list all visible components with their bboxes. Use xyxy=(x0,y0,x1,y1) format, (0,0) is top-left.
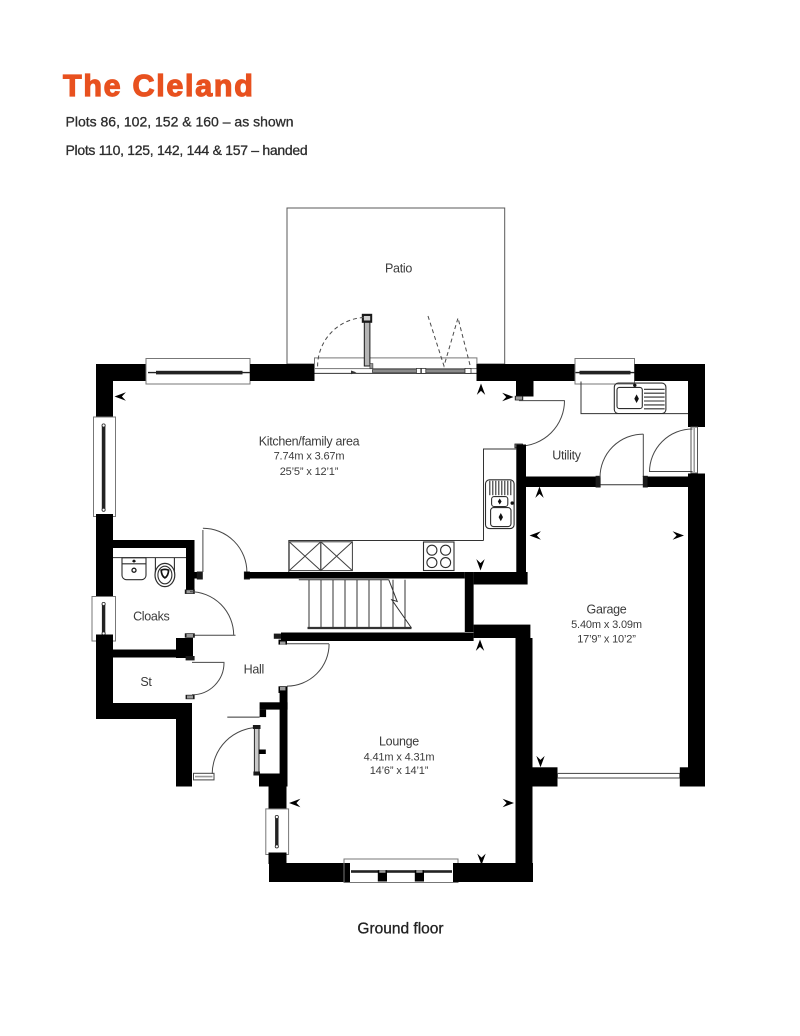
svg-text:Garage: Garage xyxy=(587,603,627,617)
svg-text:Utility: Utility xyxy=(552,449,582,463)
svg-text:Lounge: Lounge xyxy=(379,735,419,749)
svg-text:The Cleland: The Cleland xyxy=(63,69,255,103)
svg-text:5.40m x 3.09m: 5.40m x 3.09m xyxy=(571,619,642,631)
svg-text:25’5” x 12’1”: 25’5” x 12’1” xyxy=(280,466,339,478)
svg-text:Cloaks: Cloaks xyxy=(133,609,169,623)
svg-text:Hall: Hall xyxy=(244,663,264,677)
svg-text:14’6” x 14’1”: 14’6” x 14’1” xyxy=(370,765,429,777)
svg-text:Plots 86, 102, 152 & 160 – as: Plots 86, 102, 152 & 160 – as shown xyxy=(66,113,294,129)
svg-text:4.41m x 4.31m: 4.41m x 4.31m xyxy=(364,752,435,764)
svg-text:Plots 110, 125, 142, 144 & 157: Plots 110, 125, 142, 144 & 157 – handed xyxy=(66,142,308,158)
svg-text:St: St xyxy=(140,675,152,689)
svg-text:Kitchen/family area: Kitchen/family area xyxy=(259,435,360,449)
svg-text:17’9” x 10’2”: 17’9” x 10’2” xyxy=(577,634,636,646)
svg-text:Patio: Patio xyxy=(385,262,412,276)
svg-text:Ground floor: Ground floor xyxy=(357,921,443,938)
svg-text:7.74m x 3.67m: 7.74m x 3.67m xyxy=(274,451,345,463)
